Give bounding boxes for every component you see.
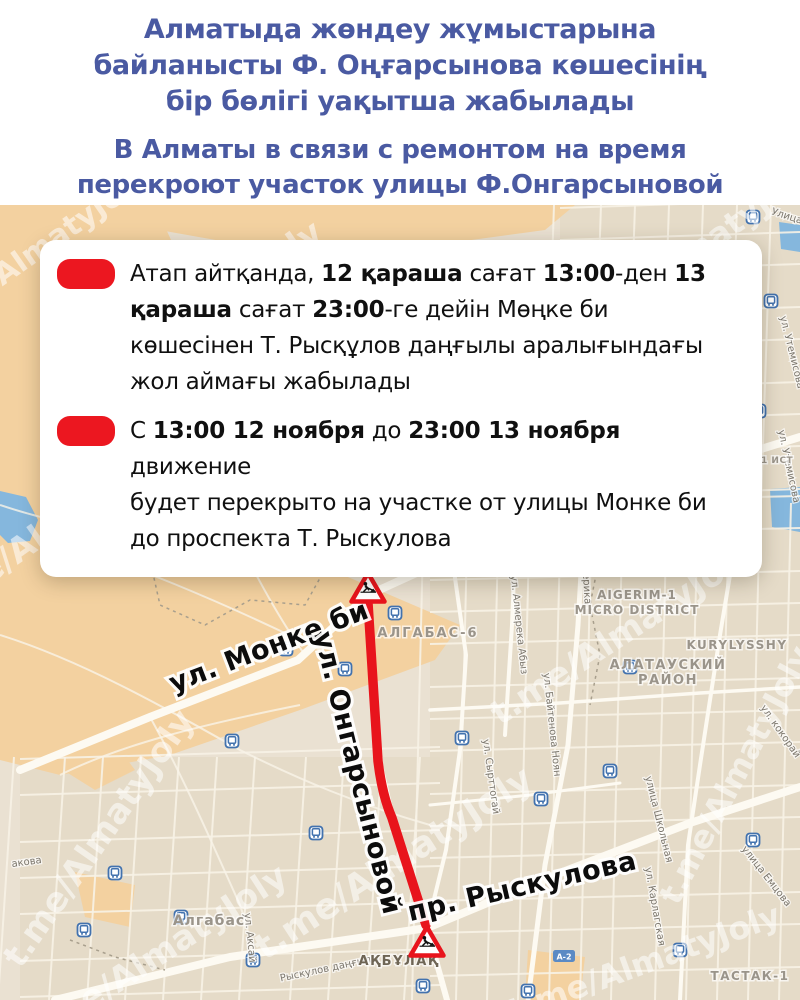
- bullet-item: С 13:00 12 ноября до 23:00 13 ноября дви…: [57, 413, 746, 557]
- district-label: -1 ИСТ: [757, 456, 794, 466]
- district-label: KURYLYSSHY: [686, 638, 787, 652]
- highway-badge-label: А-2: [556, 953, 571, 962]
- bus-stop-icon: [109, 867, 122, 880]
- bus-stop-icon: [417, 980, 430, 993]
- bus-stop-icon: [604, 765, 617, 778]
- info-card: Атап айтқанда, 12 қараша сағат 13:00-ден…: [40, 240, 762, 577]
- bullet-text: С 13:00 12 ноября до 23:00 13 ноября дви…: [130, 413, 746, 557]
- poster: Алматыда жөндеу жұмыстарына байланысты Ф…: [0, 0, 800, 1000]
- bus-stop-icon: [226, 735, 239, 748]
- district-label: РАЙОН: [638, 672, 698, 688]
- district-label: Алгабас: [173, 913, 245, 929]
- bullet-list: Атап айтқанда, 12 қараша сағат 13:00-ден…: [57, 256, 746, 557]
- title-kazakh: Алматыда жөндеу жұмыстарына байланысты Ф…: [10, 12, 790, 120]
- header: Алматыда жөндеу жұмыстарына байланысты Ф…: [0, 0, 800, 205]
- district-label: MICRO DISTRICT: [575, 603, 700, 617]
- highway-badge: А-2: [553, 950, 575, 962]
- map: t.me/AlmatyJolyt.me/AlmatyJolyt.me/Almat…: [0, 205, 800, 1000]
- district-label: AIGERIM-1: [597, 588, 677, 602]
- title-russian: В Алматы в связи с ремонтом на время пер…: [10, 133, 790, 203]
- bullet-marker: [57, 416, 115, 446]
- bus-stop-icon: [765, 295, 778, 308]
- district-label: АЛГАБАС-6: [377, 626, 478, 641]
- district-label: АЛАТАУСКИЙ: [610, 657, 727, 673]
- bullet-item: Атап айтқанда, 12 қараша сағат 13:00-ден…: [57, 256, 746, 400]
- bus-stop-icon: [310, 827, 323, 840]
- district-label: ТАСТАК-1: [711, 969, 790, 983]
- bullet-marker: [57, 259, 115, 289]
- bullet-text: Атап айтқанда, 12 қараша сағат 13:00-ден…: [130, 256, 706, 400]
- bus-stop-icon: [389, 607, 402, 620]
- bus-stop-icon: [78, 924, 91, 937]
- bus-stop-icon: [456, 732, 469, 745]
